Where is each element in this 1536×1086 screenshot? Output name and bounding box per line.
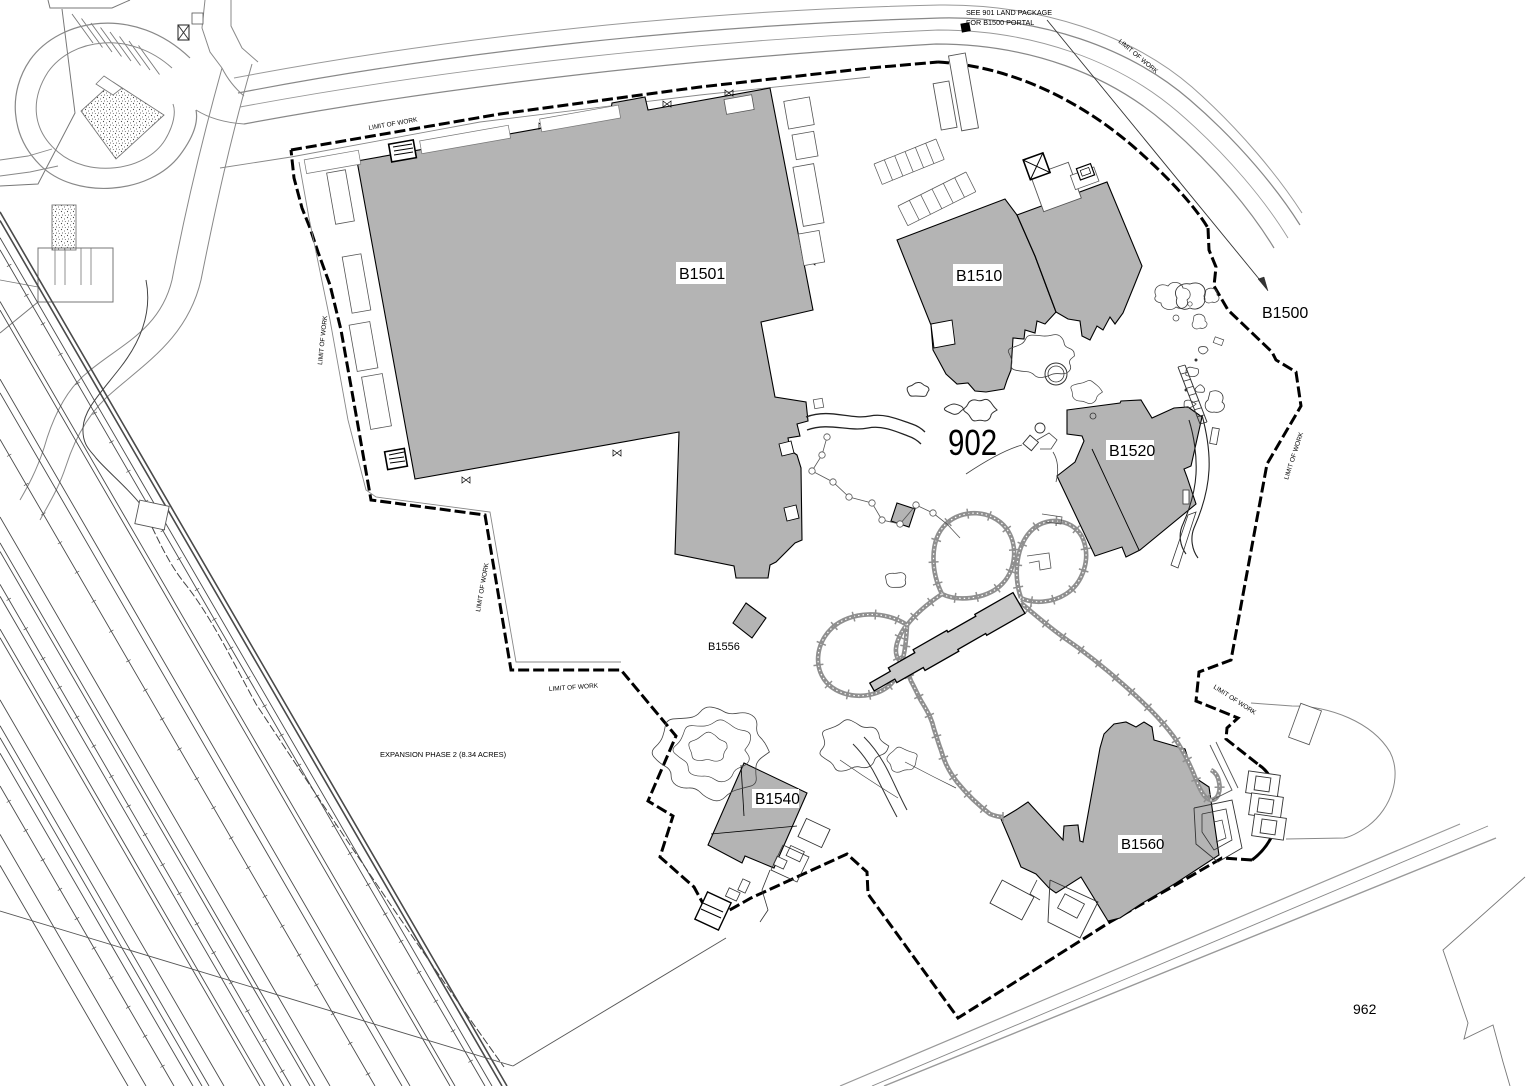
svg-text:B1501: B1501 [679,266,725,283]
svg-text:EXPANSION PHASE 2 (8.34 ACRES): EXPANSION PHASE 2 (8.34 ACRES) [380,750,507,759]
svg-text:B1500: B1500 [1262,305,1308,322]
svg-text:962: 962 [1353,1001,1377,1017]
svg-text:B1520: B1520 [1109,443,1155,460]
svg-text:FOR B1500 PORTAL: FOR B1500 PORTAL [966,18,1034,27]
svg-text:B1560: B1560 [1121,836,1164,853]
svg-text:B1540: B1540 [755,791,800,808]
svg-text:902: 902 [948,422,997,462]
svg-text:B1510: B1510 [956,268,1002,285]
svg-text:B1556: B1556 [708,641,740,653]
svg-text:SEE 901 LAND PACKAGE: SEE 901 LAND PACKAGE [966,8,1052,17]
